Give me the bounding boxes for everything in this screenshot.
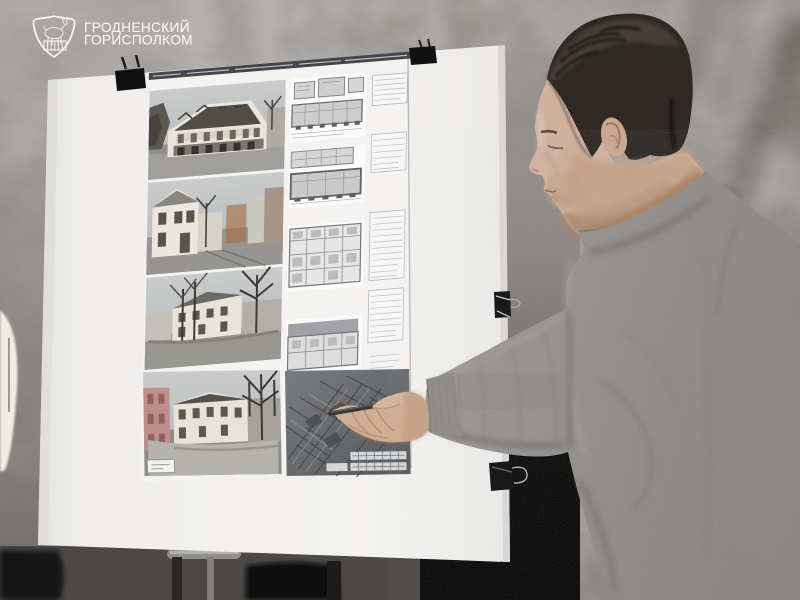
svg-text:ГОРИСПОЛКОМ: ГОРИСПОЛКОМ	[84, 33, 193, 48]
